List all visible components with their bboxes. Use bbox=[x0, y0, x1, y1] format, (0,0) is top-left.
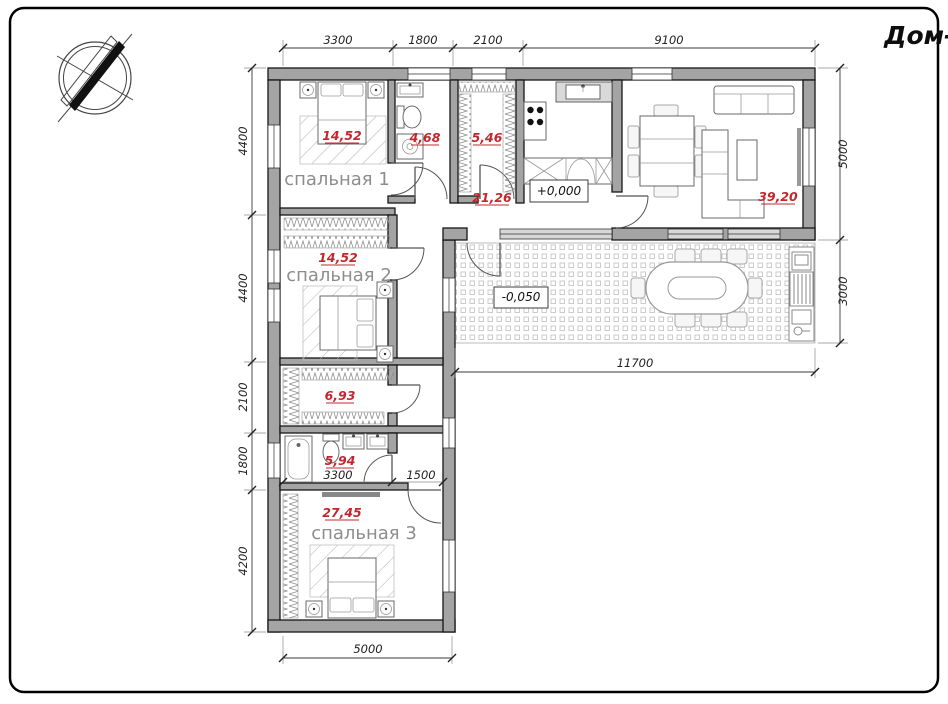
window bbox=[268, 443, 280, 478]
dim-left-2: 2100 bbox=[236, 382, 250, 411]
window bbox=[803, 128, 815, 186]
window bbox=[443, 540, 455, 592]
room-label-bedroom3: спальная 3 bbox=[311, 523, 417, 544]
area-closet: 6,93 bbox=[325, 388, 356, 403]
window bbox=[268, 250, 280, 283]
tv-living bbox=[797, 128, 801, 186]
tv-bedroom3 bbox=[322, 492, 380, 497]
area-wardrobe-top: 5,46 bbox=[472, 130, 503, 145]
dim-right-1: 3000 bbox=[836, 276, 850, 305]
page-border bbox=[10, 8, 938, 692]
bbq-grill bbox=[789, 247, 814, 341]
window bbox=[728, 229, 780, 239]
area-bedroom1: 14,52 bbox=[322, 128, 362, 143]
dim-top-2: 2100 bbox=[473, 33, 502, 47]
sliding-glass-door bbox=[500, 229, 612, 239]
fixtures-bathroom-top bbox=[397, 83, 423, 159]
window bbox=[472, 68, 506, 80]
elevation-terrace: -0,050 bbox=[502, 290, 541, 304]
dim-bathroom-width: 3300 bbox=[323, 468, 352, 482]
window bbox=[443, 418, 455, 448]
sheet-title: Дом-1 bbox=[883, 21, 948, 50]
dim-top-0: 3300 bbox=[323, 33, 352, 47]
area-hall: 21,26 bbox=[472, 190, 512, 205]
dim-left-4: 4200 bbox=[236, 546, 250, 575]
dim-left-0: 4400 bbox=[236, 126, 250, 155]
furniture-bedroom1 bbox=[300, 82, 386, 164]
dim-corridor-width: 1500 bbox=[406, 468, 435, 482]
dim-top-3: 9100 bbox=[654, 33, 683, 47]
window bbox=[268, 289, 280, 322]
window bbox=[668, 229, 723, 239]
area-living: 39,20 bbox=[758, 189, 798, 204]
room-label-bedroom2: спальная 2 bbox=[286, 265, 392, 286]
window bbox=[408, 68, 450, 80]
area-bathroom-bottom: 5,94 bbox=[325, 453, 356, 468]
dim-left-1: 4400 bbox=[236, 273, 250, 302]
dim-right-0: 5000 bbox=[836, 139, 850, 168]
area-bedroom3: 27,45 bbox=[322, 505, 362, 520]
dim-bottom: 5000 bbox=[353, 642, 382, 656]
dim-left-3: 1800 bbox=[236, 446, 250, 475]
dim-terrace-width: 11700 bbox=[617, 356, 654, 370]
area-bathroom-top: 4,68 bbox=[409, 130, 441, 145]
room-label-bedroom1: спальная 1 bbox=[284, 169, 390, 190]
window bbox=[443, 278, 455, 312]
elevation-ground: +0,000 bbox=[537, 184, 582, 198]
floor-plan-sheet: Дом-1 bbox=[0, 0, 948, 700]
floor-plan-drawing: Дом-1 bbox=[0, 0, 948, 700]
area-bedroom2: 14,52 bbox=[318, 250, 358, 265]
dim-top-1: 1800 bbox=[408, 33, 437, 47]
window bbox=[632, 68, 672, 80]
window bbox=[268, 125, 280, 168]
